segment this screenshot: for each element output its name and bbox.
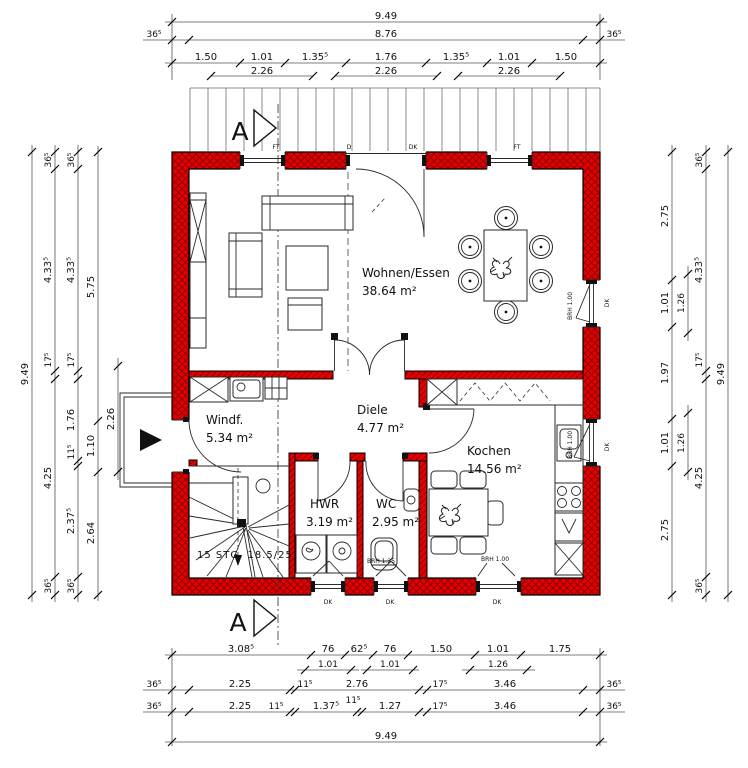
dim-label: 2.26 — [375, 66, 397, 77]
dim-label: 36⁵ — [44, 152, 54, 167]
dim-label: 1.01 — [498, 52, 520, 63]
dim-label: 1.01 — [487, 644, 509, 655]
window-type-label: D — [347, 144, 352, 151]
dim-label: 8.76 — [375, 29, 397, 40]
dim-label: 36⁵ — [67, 152, 77, 167]
section-marker-top-icon — [254, 110, 276, 146]
dim-label: 36⁵ — [44, 578, 54, 593]
dim-label: 1.35⁵ — [443, 52, 469, 63]
kitchen-fixtures — [427, 379, 583, 575]
dim-label: 2.26 — [498, 66, 520, 77]
window-type-label: DK — [493, 599, 503, 606]
window-type-label: DK — [409, 144, 419, 151]
hwr-fixtures — [296, 535, 357, 576]
entrance-arrow-icon — [140, 429, 162, 451]
dim-label: 4.33⁵ — [694, 257, 705, 283]
dim-label: 2.64 — [86, 522, 97, 544]
sill-height-label: BRH 1.00 — [567, 431, 574, 459]
dim-label: 17⁵ — [67, 352, 77, 367]
dim-label: 11⁵ — [268, 702, 283, 712]
dim-label: 36⁵ — [606, 680, 621, 690]
room-area-kochen: 14.56 m² — [467, 462, 522, 476]
dim-label: 62⁵ — [351, 644, 368, 655]
room-name-wc: WC — [376, 497, 396, 511]
dim-label: 1.01 — [251, 52, 273, 63]
sill-height-label: BRH 1.25 — [367, 558, 395, 565]
dim-label: 1.37⁵ — [313, 701, 339, 712]
dim-label: 1.97 — [660, 362, 671, 384]
dim-label: 2.25 — [229, 701, 251, 712]
room-area-windfang: 5.34 m² — [206, 431, 253, 445]
dim-left: 9.49 36⁵ 4.33⁵ 17⁵ 4.25 36⁵ 36⁵ 4.33⁵ 17… — [20, 152, 117, 593]
dim-label: 1.50 — [430, 644, 452, 655]
window-type-label: DK — [604, 442, 611, 452]
dim-label: 1.75 — [549, 644, 571, 655]
dim-label: 36⁵ — [695, 152, 705, 167]
dim-label: 76 — [384, 644, 397, 655]
dim-label: 36⁵ — [606, 702, 621, 712]
dim-label: 3.46 — [494, 679, 516, 690]
window-type-label: FT — [513, 144, 520, 151]
dim-label: 2.26 — [106, 408, 117, 430]
dim-label: 3.08⁵ — [228, 644, 254, 655]
dining-set — [459, 207, 553, 324]
dim-label: 3.46 — [494, 701, 516, 712]
dim-label: 36⁵ — [606, 30, 621, 40]
dim-label: 2.25 — [229, 679, 251, 690]
dim-top: 9.49 36⁵ 8.76 36⁵ 1.50 1.01 1.35⁵ 1.76 1… — [146, 11, 621, 77]
dim-label: 1.35⁵ — [302, 52, 328, 63]
dim-label: 17⁵ — [432, 702, 447, 712]
dim-label: 2.76 — [346, 679, 368, 690]
dim-label: 36⁵ — [146, 30, 161, 40]
dim-label: 36⁵ — [146, 702, 161, 712]
dim-label: 1.26 — [677, 293, 687, 313]
floor-plan-page: A A — [0, 0, 748, 768]
sill-height-label: BRH 1.00 — [567, 292, 574, 320]
dim-label: 11⁵ — [297, 680, 312, 690]
dim-label: 2.75 — [660, 205, 671, 227]
dim-label: 11⁵ — [345, 696, 360, 706]
dim-label: 1.50 — [195, 52, 217, 63]
room-area-hwr: 3.19 m² — [306, 515, 353, 529]
windfang-fixtures — [190, 377, 287, 402]
dim-label: 1.01 — [660, 292, 671, 314]
dim-label: 1.10 — [86, 435, 97, 457]
stairs-label: 15 STG. 18.5/25 — [197, 550, 293, 561]
dim-label: 17⁵ — [695, 352, 705, 367]
sill-height-label: BRH 1.00 — [481, 556, 509, 563]
window-type-label: FT — [272, 144, 279, 151]
room-name-wohnen: Wohnen/Essen — [362, 266, 450, 280]
room-area-diele: 4.77 m² — [357, 421, 404, 435]
window-type-label: DK — [604, 298, 611, 308]
dim-label: 1.01 — [380, 660, 400, 670]
dim-label: 11⁵ — [67, 444, 77, 459]
dim-right: 2.75 1.01 1.97 1.01 2.75 1.26 1.26 36⁵ 4… — [660, 152, 727, 593]
dim-label: 9.49 — [375, 731, 397, 742]
dim-label: 9.49 — [375, 11, 397, 22]
dim-label: 36⁵ — [67, 578, 77, 593]
dim-label: 1.76 — [66, 409, 77, 431]
dim-label: 2.75 — [660, 519, 671, 541]
room-name-kochen: Kochen — [467, 444, 511, 458]
dimension-lines — [28, 14, 732, 746]
dim-label: 17⁵ — [44, 352, 54, 367]
dim-label: 17⁵ — [432, 680, 447, 690]
living-furniture — [190, 193, 353, 348]
room-name-diele: Diele — [357, 403, 388, 417]
dim-label: 36⁵ — [695, 578, 705, 593]
dim-label: 5.75 — [86, 276, 97, 298]
room-area-wc: 2.95 m² — [372, 515, 419, 529]
dim-label: 2.26 — [251, 66, 273, 77]
stairs: 15 STG. 18.5/25 — [189, 466, 293, 577]
section-label-top: A — [231, 117, 248, 146]
section-marker-bottom-icon — [254, 600, 276, 636]
window-type-label: DK — [324, 599, 334, 606]
dim-label: 9.49 — [20, 363, 31, 385]
dim-label: 76 — [322, 644, 335, 655]
entrance-porch — [120, 393, 172, 487]
dim-label: 36⁵ — [146, 680, 161, 690]
section-label-bottom: A — [229, 608, 246, 637]
dim-label: 1.01 — [660, 432, 671, 454]
dim-label: 2.37⁵ — [66, 508, 77, 534]
terrace-door — [356, 169, 424, 237]
dim-label: 4.33⁵ — [43, 257, 54, 283]
room-name-windfang: Windf. — [206, 413, 243, 427]
dim-label: 9.49 — [716, 363, 727, 385]
terrace-decking — [190, 88, 600, 151]
room-name-hwr: HWR — [310, 497, 339, 511]
dim-label: 4.25 — [694, 467, 705, 489]
dim-bottom: 3.08⁵ 76 62⁵ 76 1.50 1.01 1.75 1.01 1.01… — [146, 644, 621, 742]
room-area-wohnen: 38.64 m² — [362, 284, 417, 298]
dim-label: 1.26 — [677, 433, 687, 453]
floor-plan-svg: A A — [0, 0, 748, 768]
dim-label: 1.27 — [379, 701, 401, 712]
dim-label: 1.01 — [318, 660, 338, 670]
dim-label: 4.25 — [43, 467, 54, 489]
dim-label: 1.26 — [488, 660, 508, 670]
dim-label: 1.76 — [375, 52, 397, 63]
window-type-label: DK — [386, 599, 396, 606]
dim-label: 1.50 — [555, 52, 577, 63]
dim-label: 4.33⁵ — [66, 257, 77, 283]
